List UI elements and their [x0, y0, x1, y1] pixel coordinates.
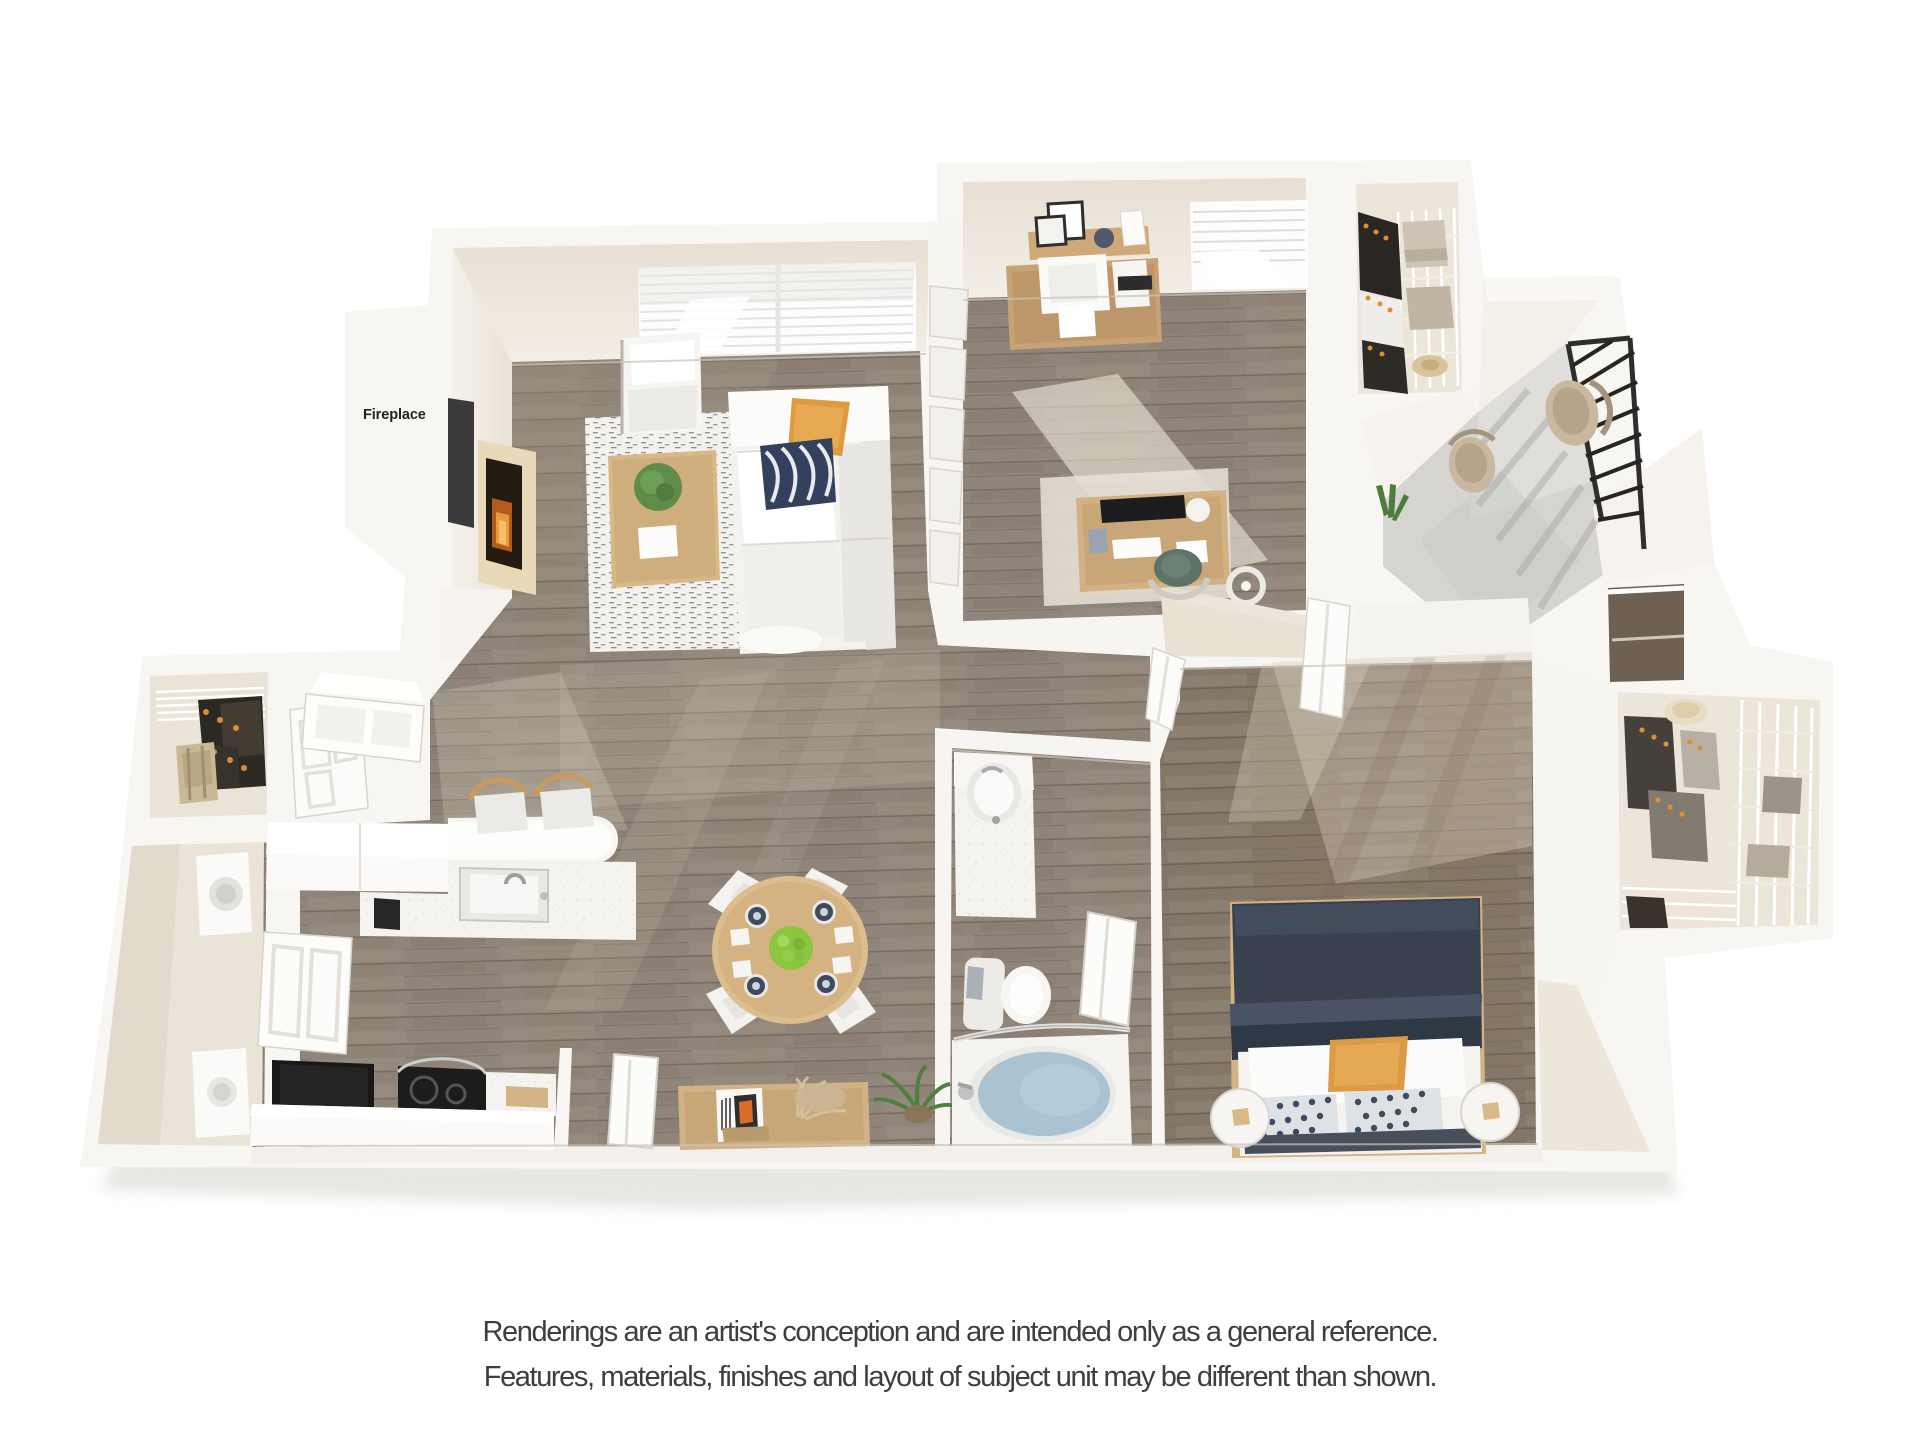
svg-text:Renderings are an artist's con: Renderings are an artist's conception an…	[483, 1316, 1438, 1348]
svg-text:Fireplace: Fireplace	[363, 407, 426, 423]
svg-text:Features, materials, finishes: Features, materials, finishes and layout…	[484, 1361, 1436, 1393]
